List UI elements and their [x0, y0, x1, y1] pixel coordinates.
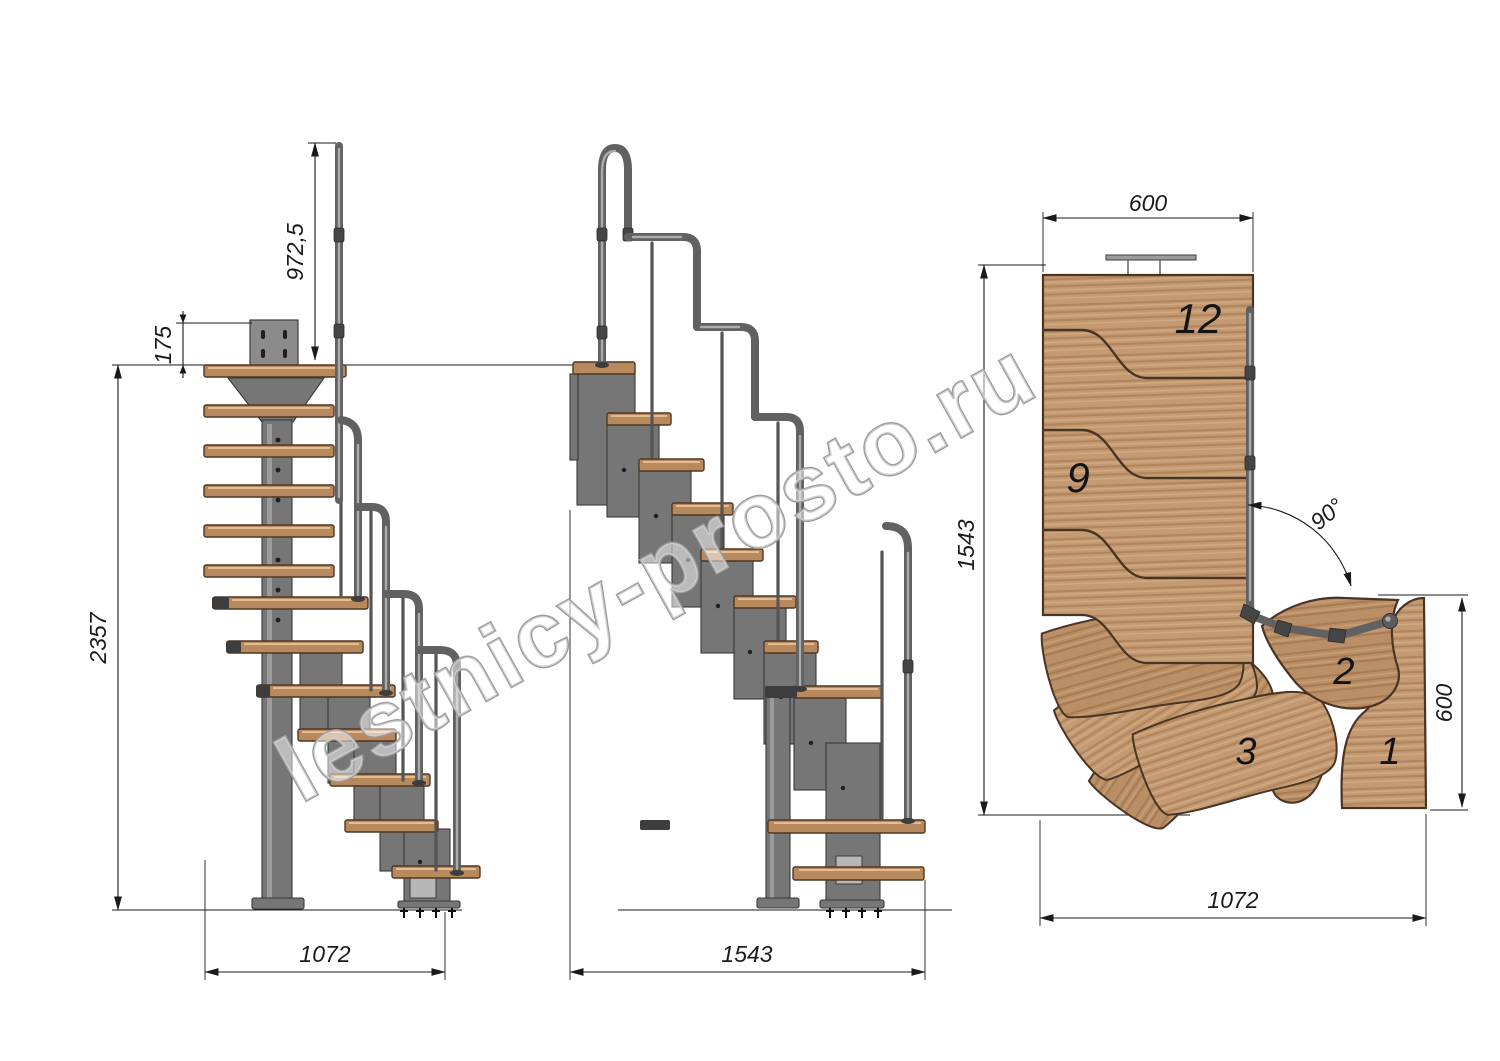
dim-plan-depth-label: 1543: [953, 519, 979, 570]
dim-total-height-label: 2357: [85, 611, 111, 664]
dim-plan-run-label: 1072: [1207, 887, 1258, 913]
step-9-label: 9: [1066, 454, 1089, 501]
dim-top-offset-label: 175: [150, 326, 176, 365]
module-base-flange: [398, 901, 460, 908]
column-base-flange: [252, 898, 304, 909]
staircase-drawing: 972,5 175 2357 1072: [0, 0, 1500, 1061]
dim-plan-top-width-label: 600: [1129, 190, 1168, 216]
step-2-label: 2: [1332, 651, 1354, 693]
dim-plan-entry-width-label: 600: [1431, 684, 1457, 723]
step-3-label: 3: [1235, 731, 1256, 773]
step-12-label: 12: [1175, 295, 1222, 342]
dim-side-run-label: 1072: [299, 941, 350, 967]
technical-drawing-page: 972,5 175 2357 1072: [0, 0, 1500, 1061]
dim-rail-height-label: 972,5: [282, 223, 308, 281]
step-1-label: 1: [1379, 731, 1400, 773]
support-column: [766, 690, 790, 902]
dim-front-width-label: 1543: [721, 941, 772, 967]
wall-plate: [250, 320, 298, 366]
